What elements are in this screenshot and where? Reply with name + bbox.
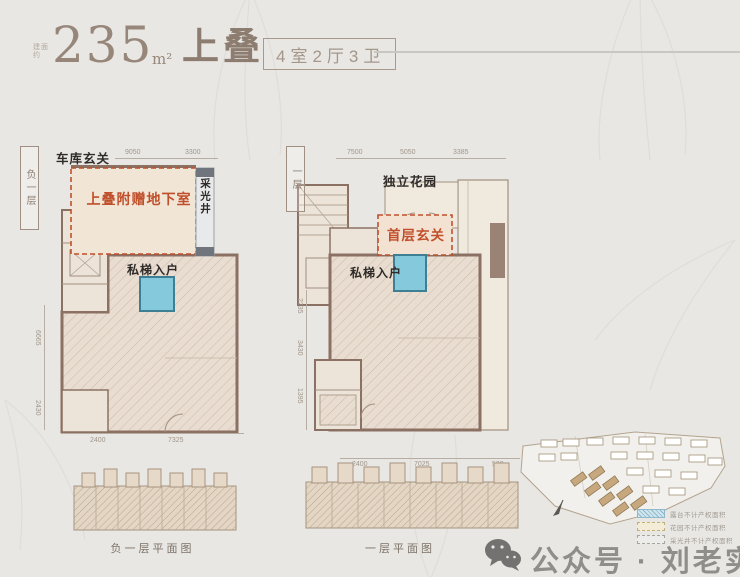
basement-private-elevator-label: 私梯入户 [127,261,179,278]
floorplan-poster: 建面约 235 m² 上叠 4室2厅3卫 负一层 车库玄关 上叠附赠地下室 采光… [0,0,740,577]
legend-row: 花园不计产权面积 [637,520,733,533]
legend-label: 花园不计产权面积 [670,522,726,532]
area-unit: m² [152,50,172,68]
dim-line [72,433,244,434]
basement-keyplan-caption: 负一层平面图 [90,540,215,556]
area-prefix-label: 建面约 [33,44,49,60]
dim-line [336,158,506,159]
dim-value: 2430 [34,400,41,416]
wechat-icon [484,537,522,571]
area-value: 235 [52,20,153,70]
first-floor-private-elevator-label: 私梯入户 [350,264,402,281]
entry-label: 首层玄关 [380,224,452,244]
light-well-label: 采光井 [198,178,213,216]
basement-keyplan-drawing [68,460,243,540]
header-rule [374,51,740,53]
first-floor-keyplan-caption: 一层平面图 [335,540,465,556]
bonus-basement-label: 上叠附赠地下室 [75,189,203,209]
dim-line [306,290,307,430]
dim-value: 3385 [453,149,469,156]
watermark-text: 公众号 · 刘老实选房 [530,538,740,577]
garden-label: 独立花园 [383,171,437,190]
basement-floorplan-drawing [15,138,265,458]
dim-value: 3430 [296,340,303,356]
dim-value: 9050 [125,149,141,156]
dim-value: 5050 [400,149,416,156]
basement-level-tag: 负一层 [20,146,39,230]
dim-value: 3300 [185,149,201,156]
spec-badge: 4室2厅3卫 [263,38,396,70]
legend-swatch-terrace [637,509,665,518]
garage-entry-label: 车库玄关 [56,148,110,167]
dim-value: 1395 [296,388,303,404]
legend-label: 露台不计产权面积 [670,509,726,519]
dim-value: 2235 [296,298,303,314]
dim-value: 2400 [90,437,106,444]
legend-row: 露台不计产权面积 [637,507,733,520]
dim-value: 7500 [347,149,363,156]
dim-value: 7325 [168,437,184,444]
first-floor-keyplan-drawing [300,452,525,537]
product-name: 上叠 [182,26,264,66]
dim-value: 6665 [34,330,41,346]
first-floor-level-tag: 一层 [286,146,305,212]
dim-line [115,158,218,159]
dim-line [44,305,45,430]
legend-swatch-garden [637,522,665,531]
